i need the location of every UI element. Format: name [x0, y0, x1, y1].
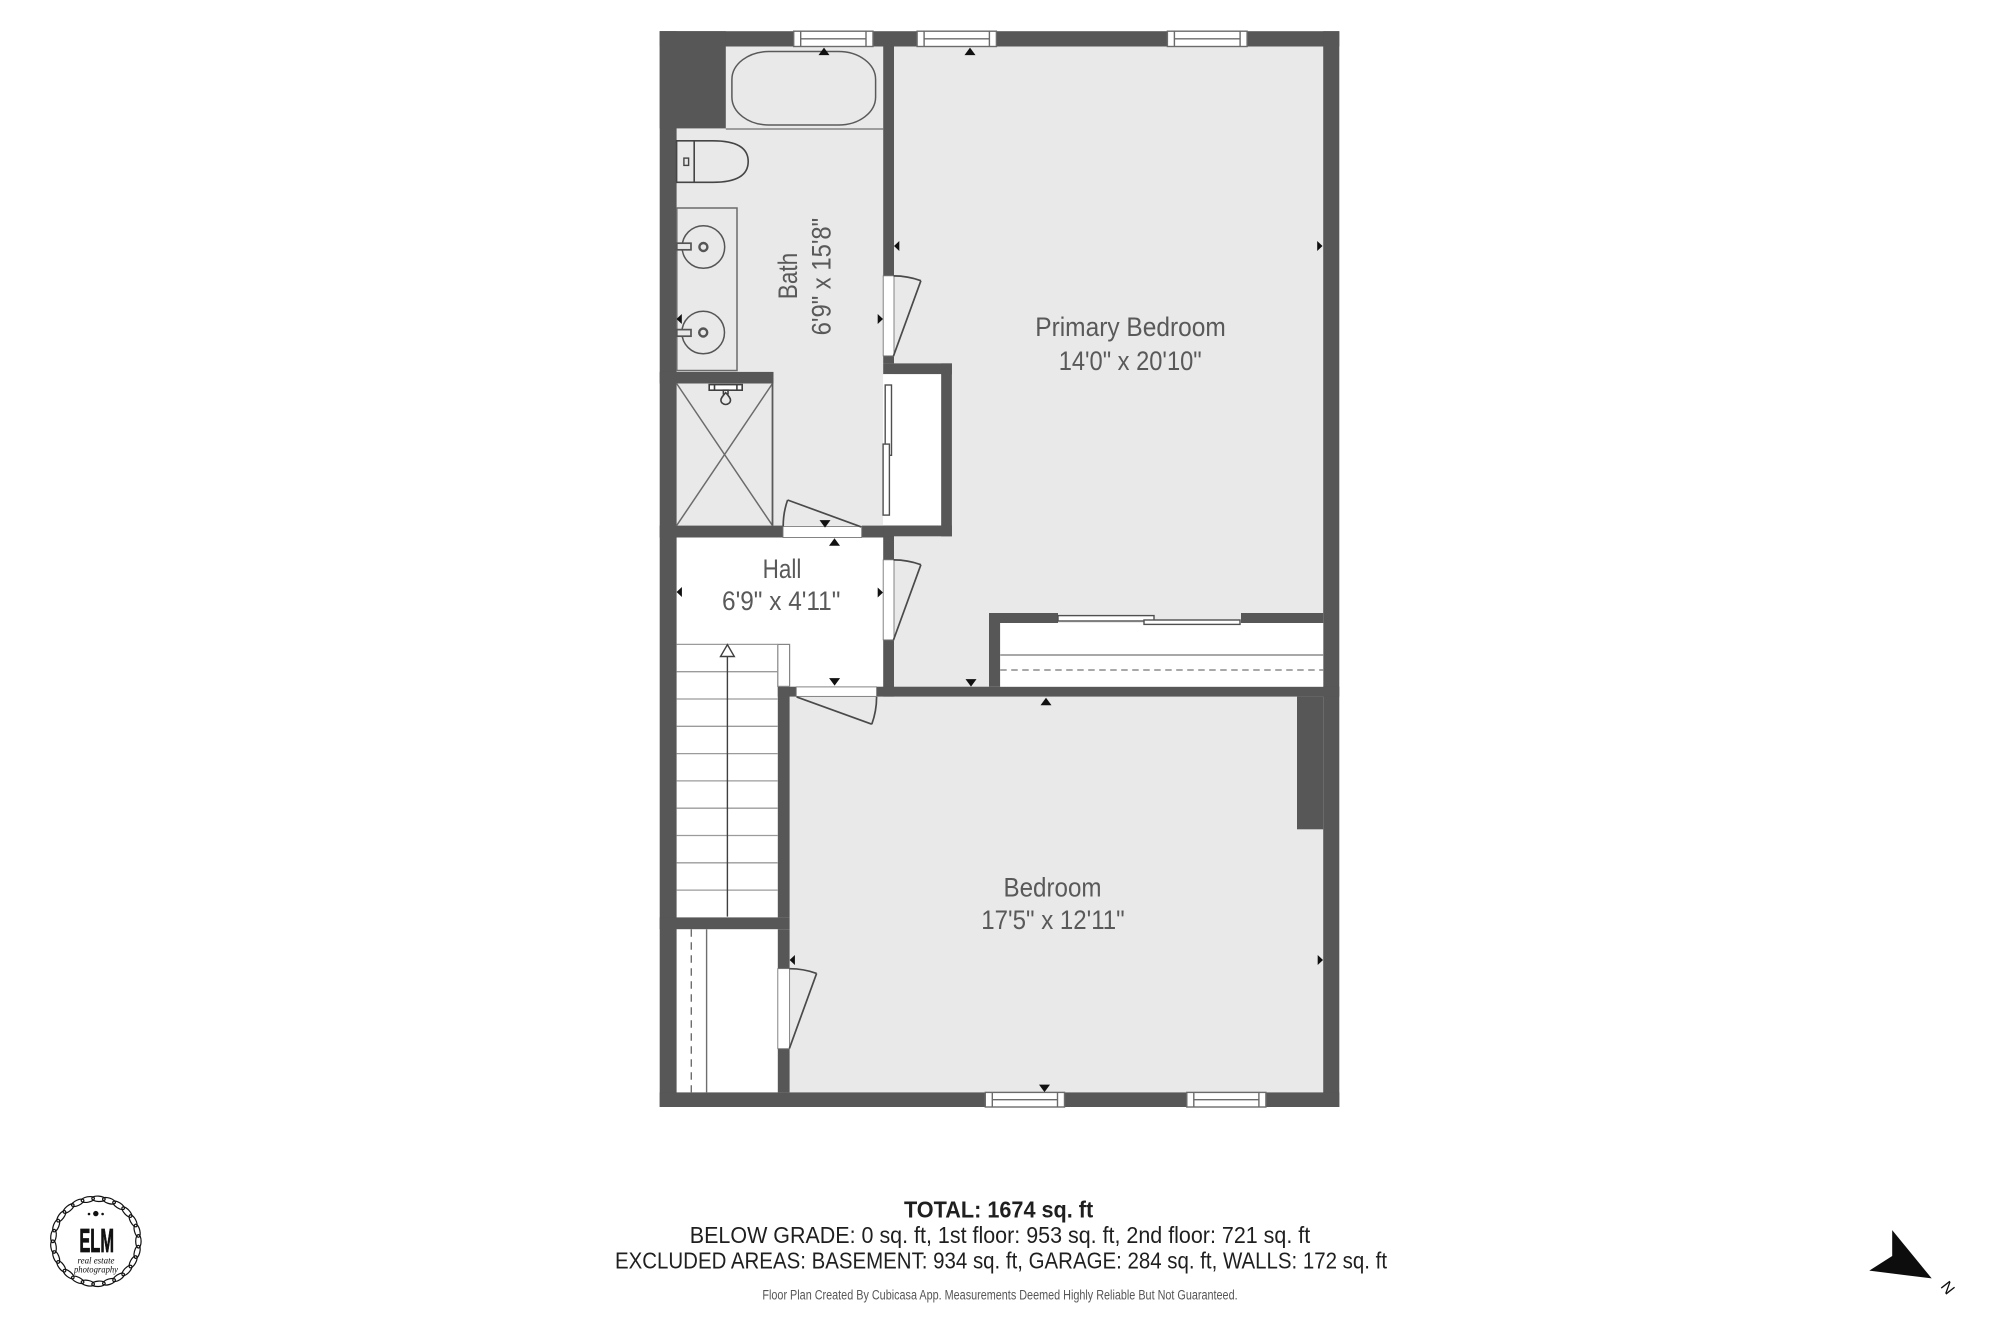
svg-text:photography: photography — [73, 1265, 118, 1275]
svg-text:BELOW GRADE: 0 sq. ft, 1st flo: BELOW GRADE: 0 sq. ft, 1st floor: 953 sq… — [690, 1222, 1311, 1248]
svg-text:ELM: ELM — [79, 1222, 114, 1259]
svg-text:Primary Bedroom: Primary Bedroom — [1035, 312, 1226, 342]
svg-text:6'9" x 15'8": 6'9" x 15'8" — [807, 218, 837, 336]
svg-text:Bedroom: Bedroom — [1004, 872, 1102, 902]
svg-text:EXCLUDED AREAS: BASEMENT: 934: EXCLUDED AREAS: BASEMENT: 934 sq. ft, GA… — [615, 1248, 1387, 1274]
svg-text:14'0" x 20'10": 14'0" x 20'10" — [1059, 346, 1202, 376]
svg-text:Floor Plan Created By Cubicasa: Floor Plan Created By Cubicasa App. Meas… — [762, 1288, 1237, 1303]
svg-text:Bath: Bath — [773, 253, 803, 300]
svg-text:TOTAL: 1674 sq. ft: TOTAL: 1674 sq. ft — [904, 1196, 1093, 1222]
svg-text:6'9" x 4'11": 6'9" x 4'11" — [722, 586, 840, 616]
svg-text:17'5" x 12'11": 17'5" x 12'11" — [981, 905, 1124, 935]
svg-text:Hall: Hall — [763, 554, 802, 584]
